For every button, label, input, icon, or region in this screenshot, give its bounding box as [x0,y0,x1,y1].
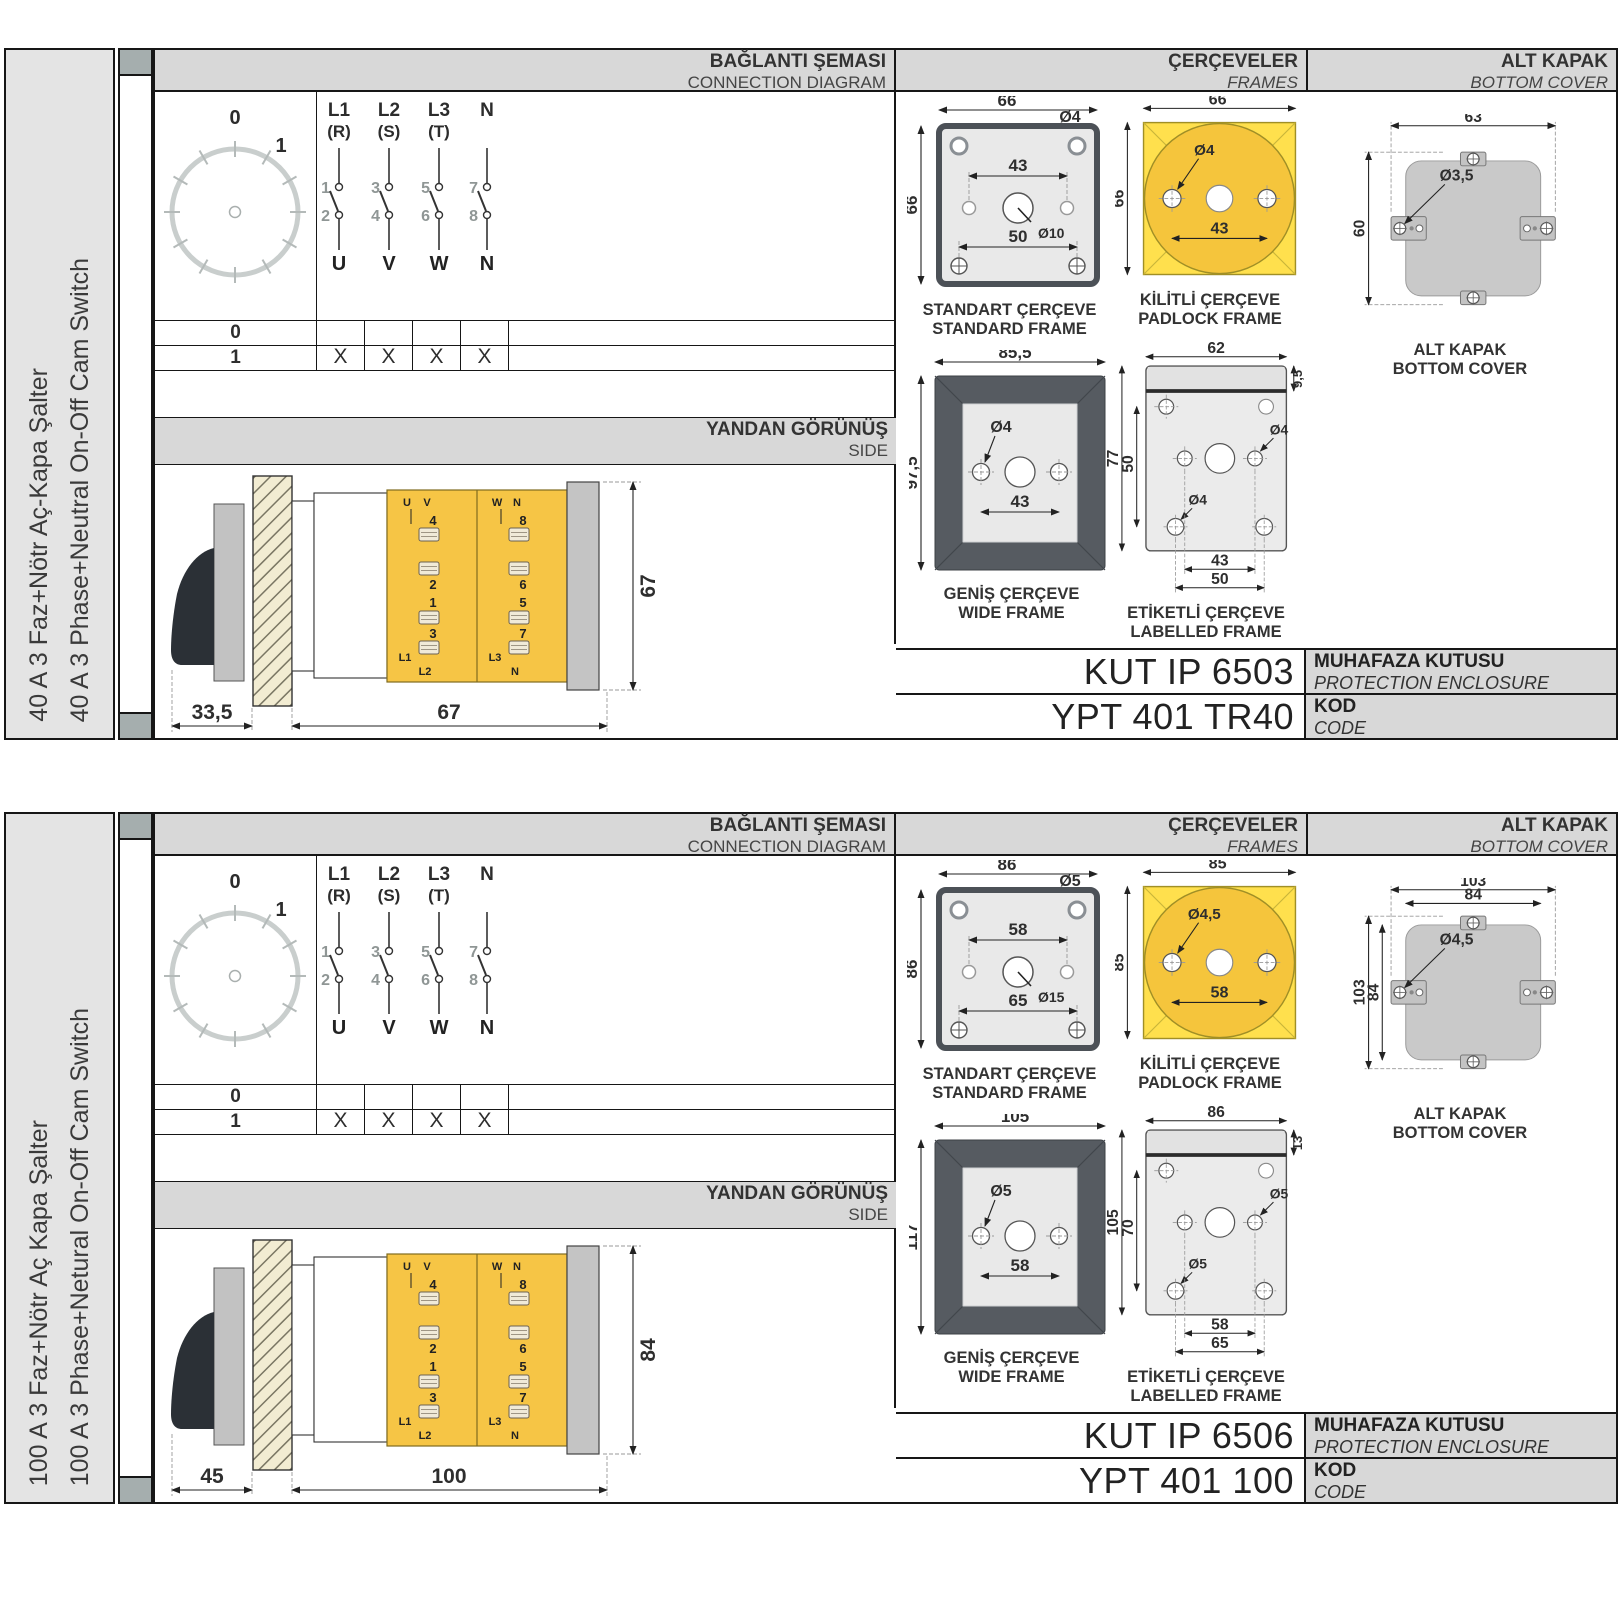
dim-hole-a: Ø5 [1270,1185,1289,1201]
side-header-tr: YANDAN GÖRÜNÜŞ [155,1183,888,1205]
dim-frame-width: 66 [1209,96,1227,109]
dim-hole-span: 58 [1011,1256,1030,1275]
dim-inner-height: 50 [1120,455,1137,473]
dim-hole-span: 43 [1009,156,1028,175]
end-plate [567,1246,599,1454]
dim-frame-height: 97,5 [909,456,921,489]
dim-frame-width: 85,5 [998,350,1031,362]
dim-hole-span: 58 [1211,984,1229,1002]
end-plate [567,482,599,690]
dim-frame-height: 85 [1115,954,1128,972]
caption-padlock-tr: KİLİTLİ ÇERÇEVE [1115,1055,1305,1074]
dim-frame-width: 85 [1209,860,1227,873]
contact-state-cell [317,1085,365,1109]
dim-frame-height: 66 [1115,190,1128,208]
side-view-drawing: U V 4 2 1 3 L1 L2 W N [163,474,683,738]
dim-label-strip: 13 [1290,1136,1305,1150]
switching-table: 0 1 X X X X [155,320,896,371]
header-connection-en: CONNECTION DIAGRAM [155,837,886,857]
dim-hole-span: 43 [1211,220,1229,238]
terminal-number-in: 1 [321,180,330,197]
phase-sublabel: (R) [327,886,351,905]
dim-cover-top-inner: 84 [1465,887,1483,904]
side-view-header: YANDAN GÖRÜNÜŞ SIDE [155,417,896,465]
contact-state-cell [317,321,365,345]
contact-state-cell [413,321,461,345]
contact-state-cell: X [413,346,461,370]
header-cover-tr: ALT KAPAK [1308,51,1608,73]
caption-labelled-tr: ETİKETLİ ÇERÇEVE [1107,1368,1305,1387]
switch-handle [171,548,214,665]
wide-frame-drawing: 105 Ø5 58 117 [909,1114,1114,1342]
terminal-number-out: 4 [371,208,380,225]
terminal-label: L1 [399,652,412,664]
dim-hole-a: Ø4 [1270,421,1289,437]
dim-span-b: 50 [1211,571,1229,588]
terminal-label: U [403,497,411,509]
output-terminal-label: V [382,253,396,275]
terminal-label: N [513,497,521,509]
terminal-label: 1 [429,1359,436,1374]
standard-frame-figure: 66 Ø4 Ø10 43 50 66 [907,96,1112,339]
table-spacer [509,346,896,370]
dim-cover-left-outer: 60 [1352,219,1369,237]
terminal-label: L2 [419,1430,432,1442]
terminal-number-in: 7 [469,944,478,961]
dim-frame-height: 66 [907,196,921,215]
terminal-label: L3 [489,652,502,664]
output-terminal-label: V [382,1017,396,1039]
header-frames-en: FRAMES [896,73,1298,93]
standard-frame-drawing: 66 Ø4 Ø10 43 50 66 [907,96,1112,294]
caption-wide-tr: GENİŞ ÇERÇEVE [909,1349,1114,1368]
handle-boss [214,504,244,681]
output-terminal-label: W [430,253,449,275]
side-header-tr: YANDAN GÖRÜNÜŞ [155,419,888,441]
phase-label: N [480,864,494,885]
table-spacer [509,1085,896,1109]
labelled-frame-drawing: 62 Ø4 Ø4 9,5 77 50 [1107,342,1305,597]
bottom-cover-drawing: 63 60 [1345,114,1575,334]
code-label-cell: KOD CODE [1306,695,1616,738]
terminal-number-out: 2 [321,972,330,989]
header-cover-en: BOTTOM COVER [1308,73,1608,93]
dim-hole-b: Ø5 [1188,1256,1207,1272]
spacer-ring [292,1265,314,1435]
switching-table: 0 1 X X X X [155,1084,896,1135]
contacts-cell: L1 (R) 1 2 U L2 (S) 3 [317,856,892,1084]
product-row: 40 A 3 Faz+Nötr Aç-Kapa Şalter 40 A 3 Ph… [4,48,1618,740]
dim-span-b: 65 [1211,1335,1229,1352]
code-row: YPT 401 TR40 KOD CODE [896,693,1616,738]
contact-state-cell [413,1085,461,1109]
product-sidebar: 100 A 3 Faz+Nötr Aç Kapa Şalter 100 A 3 … [4,812,115,1504]
terminal-number-out: 2 [321,208,330,225]
code-label-en: CODE [1314,718,1608,739]
product-sidebar: 40 A 3 Faz+Nötr Aç-Kapa Şalter 40 A 3 Ph… [4,48,115,740]
dim-screw-span: 50 [1009,227,1028,246]
contact-state-cell [365,1085,413,1109]
dial-position-1: 1 [275,899,286,921]
dim-hole: Ø4,5 [1188,906,1221,923]
section-header-band: BAĞLANTI ŞEMASI CONNECTION DIAGRAM ÇERÇE… [155,50,1616,92]
caption-cover-tr: ALT KAPAK [1345,1105,1575,1124]
labelled-frame-figure: 86 Ø5 Ø5 13 105 70 [1107,1106,1305,1406]
spine-square-top [120,814,151,840]
phase-label: L1 [328,864,351,885]
output-terminal-label: W [430,1017,449,1039]
front-housing [314,493,387,678]
contact-state-cell [461,321,509,345]
side-view-header: YANDAN GÖRÜNÜŞ SIDE [155,1181,896,1229]
mounting-panel-hatched [253,1240,292,1470]
padlock-frame-drawing: 85 Ø4,5 58 85 [1115,860,1305,1048]
labelled-frame-figure: 62 Ø4 Ø4 9,5 77 50 [1107,342,1305,642]
terminal-label: L1 [399,1416,412,1428]
position-label: 1 [155,346,317,370]
wide-frame-figure: 85,5 Ø4 43 97,5 GENİŞ ÇERÇEV [909,350,1114,623]
terminal-number-in: 1 [321,944,330,961]
dim-frame-height: 86 [907,960,921,979]
dim-center-hole: Ø15 [1038,989,1065,1005]
caption-labelled-tr: ETİKETLİ ÇERÇEVE [1107,604,1305,623]
caption-cover-en: BOTTOM COVER [1345,360,1575,379]
product-name-tr: 40 A 3 Faz+Nötr Aç-Kapa Şalter [25,368,54,722]
dial-position-0: 0 [229,107,240,129]
datasheet-panel: BAĞLANTI ŞEMASI CONNECTION DIAGRAM ÇERÇE… [153,48,1618,740]
wide-frame-drawing: 85,5 Ø4 43 97,5 [909,350,1114,578]
enclosure-row: KUT IP 6506 MUHAFAZA KUTUSU PROTECTION E… [896,1412,1616,1457]
caption-labelled-en: LABELLED FRAME [1107,623,1305,642]
dim-frame-width: 66 [998,96,1017,110]
enclosure-label-en: PROTECTION ENCLOSURE [1314,673,1608,694]
header-bottom-cover: ALT KAPAK BOTTOM COVER [1308,814,1616,854]
table-row-position-1: 1 X X X X [155,345,896,370]
caption-wide-tr: GENİŞ ÇERÇEVE [909,585,1114,604]
spine-square-bottom [120,712,151,738]
dial-position-1: 1 [275,135,286,157]
output-terminal-label: U [332,253,346,275]
side-header-en: SIDE [155,1205,888,1225]
dim-frame-height: 117 [909,1223,921,1250]
dim-handle-depth: 45 [200,1465,224,1488]
contact-state-cell: X [413,1110,461,1134]
caption-standard-en: STANDARD FRAME [907,1084,1112,1103]
terminal-number-out: 8 [469,972,478,989]
dim-handle-depth: 33,5 [192,701,233,724]
terminal-label: 2 [429,1341,436,1356]
caption-padlock-tr: KİLİTLİ ÇERÇEVE [1115,291,1305,310]
section-header-band: BAĞLANTI ŞEMASI CONNECTION DIAGRAM ÇERÇE… [155,814,1616,856]
dial-cell: 0 1 [155,856,317,1084]
contact-column: L2 (S) 3 4 V [371,864,400,1039]
terminal-label: L3 [489,1416,502,1428]
dim-frame-width: 105 [1001,1114,1029,1126]
code-label-en: CODE [1314,1482,1608,1503]
contact-state-cell: X [317,346,365,370]
dim-inner-height: 70 [1120,1219,1137,1237]
terminal-label: 8 [519,513,526,528]
caption-standard-en: STANDARD FRAME [907,320,1112,339]
phase-sublabel: (S) [378,886,401,905]
contact-state-cell [461,1085,509,1109]
enclosure-row: KUT IP 6503 MUHAFAZA KUTUSU PROTECTION E… [896,648,1616,693]
enclosure-label-tr: MUHAFAZA KUTUSU [1314,1415,1608,1437]
table-row-position-1: 1 X X X X [155,1109,896,1134]
caption-padlock-en: PADLOCK FRAME [1115,1074,1305,1093]
rotary-dial-diagram: 0 1 [155,856,317,1084]
contact-diagram: L1 (R) 1 2 U L2 (S) 3 [317,856,892,1084]
front-housing [314,1257,387,1442]
enclosure-label-cell: MUHAFAZA KUTUSU PROTECTION ENCLOSURE [1306,1414,1616,1457]
terminal-label: 7 [519,626,526,641]
terminal-label: N [513,1261,521,1273]
phase-label: L2 [378,100,400,121]
binding-spine [118,48,153,740]
cover-left-inner-dim: 84 [1365,925,1382,1060]
contact-column: N 7 8 N [469,100,494,275]
spine-square-bottom [120,1476,151,1502]
terminal-label: U [403,1261,411,1273]
terminal-number-out: 8 [469,208,478,225]
phase-sublabel: (R) [327,122,351,141]
table-row-position-0: 0 [155,320,896,345]
phase-label: L3 [428,100,450,121]
table-spacer [509,321,896,345]
dim-label-strip: 9,5 [1290,370,1305,388]
padlock-frame-figure: 85 Ø4,5 58 85 KİLİTLİ ÇERÇEV [1115,860,1305,1093]
dim-span-a: 58 [1211,1317,1229,1334]
header-frames-tr: ÇERÇEVELER [896,815,1298,837]
contact-state-cell: X [317,1110,365,1134]
output-terminal-label: N [480,253,494,275]
terminal-label: N [511,666,519,678]
side-view-figure: U V 4 2 1 3 L1 L2 W N [163,1238,683,1507]
table-row-position-0: 0 [155,1084,896,1109]
header-connection-diagram: BAĞLANTI ŞEMASI CONNECTION DIAGRAM [155,814,896,854]
contact-column: L1 (R) 1 2 U [321,100,351,275]
side-header-en: SIDE [155,441,888,461]
phase-sublabel: (S) [378,122,401,141]
terminal-label: 4 [429,1277,437,1292]
datasheet-panel: BAĞLANTI ŞEMASI CONNECTION DIAGRAM ÇERÇE… [153,812,1618,1504]
terminal-label: 5 [519,1359,526,1374]
dim-hole-b: Ø4 [1188,492,1207,508]
bottom-cover-figure: 63 60 [1345,114,1575,379]
terminal-number-out: 6 [421,972,430,989]
terminal-label: 2 [429,577,436,592]
terminal-label: 4 [429,513,437,528]
padlock-frame-drawing: 66 Ø4 43 66 [1115,96,1305,284]
dim-frame-width: 86 [1207,1106,1225,1121]
terminal-label: 5 [519,595,526,610]
enclosure-code-value: KUT IP 6503 [896,650,1306,693]
dim-hole: Ø4 [990,419,1011,436]
terminal-label: W [492,1261,503,1273]
phase-label: L3 [428,864,450,885]
caption-cover-tr: ALT KAPAK [1345,341,1575,360]
terminal-label: N [511,1430,519,1442]
caption-wide-en: WIDE FRAME [909,1368,1114,1387]
side-view-drawing: U V 4 2 1 3 L1 L2 W N [163,1238,683,1502]
terminal-number-in: 7 [469,180,478,197]
contact-column: L3 (T) 5 6 W [421,864,450,1039]
caption-standard-tr: STANDART ÇERÇEVE [907,1065,1112,1084]
dim-hole-span: 58 [1009,920,1028,939]
output-terminal-label: U [332,1017,346,1039]
dim-cover-top-outer: 63 [1465,114,1483,126]
caption-standard-tr: STANDART ÇERÇEVE [907,301,1112,320]
product-name-tr: 100 A 3 Faz+Nötr Aç Kapa Şalter [25,1120,54,1486]
dim-cover-hole: Ø4,5 [1440,931,1474,948]
product-code-value: YPT 401 100 [896,1459,1306,1502]
contact-column: L1 (R) 1 2 U [321,864,351,1039]
terminal-number-in: 5 [421,180,430,197]
header-connection-tr: BAĞLANTI ŞEMASI [155,51,886,73]
bottom-cover-drawing: 103 84 103 84 [1345,878,1575,1098]
terminal-label: V [423,1261,431,1273]
terminal-number-out: 6 [421,208,430,225]
output-terminal-label: N [480,1017,494,1039]
header-connection-en: CONNECTION DIAGRAM [155,73,886,93]
dim-hole: Ø5 [990,1183,1011,1200]
terminal-label: 3 [429,626,436,641]
caption-padlock-en: PADLOCK FRAME [1115,310,1305,329]
caption-cover-en: BOTTOM COVER [1345,1124,1575,1143]
header-frames-en: FRAMES [896,837,1298,857]
terminal-label: 3 [429,1390,436,1405]
product-name-en: 40 A 3 Phase+Neutral On-Off Cam Switch [66,258,95,722]
wide-frame-figure: 105 Ø5 58 117 GENİŞ ÇERÇEVE [909,1114,1114,1387]
contact-column: L2 (S) 3 4 V [371,100,400,275]
contact-state-cell: X [461,1110,509,1134]
side-view-figure: U V 4 2 1 3 L1 L2 W N [163,474,683,743]
terminal-label: 6 [519,1341,526,1356]
position-label: 1 [155,1110,317,1134]
dim-hole: Ø4 [1194,142,1215,159]
terminal-label: 6 [519,577,526,592]
rotary-dial-diagram: 0 1 [155,92,317,320]
contact-diagram: L1 (R) 1 2 U L2 (S) 3 [317,92,892,320]
header-cover-tr: ALT KAPAK [1308,815,1608,837]
header-frames-tr: ÇERÇEVELER [896,51,1298,73]
table-spacer [509,1110,896,1134]
padlock-frame-figure: 66 Ø4 43 66 KİLİTLİ ÇERÇEVE [1115,96,1305,329]
mounting-panel-hatched [253,476,292,706]
terminal-label: V [423,497,431,509]
standard-frame-drawing: 86 Ø5 Ø15 58 65 86 [907,860,1112,1058]
enclosure-label-cell: MUHAFAZA KUTUSU PROTECTION ENCLOSURE [1306,650,1616,693]
contacts-cell: L1 (R) 1 2 U L2 (S) 3 [317,92,892,320]
position-label: 0 [155,321,317,345]
dim-frame-width: 86 [998,860,1017,874]
code-label-cell: KOD CODE [1306,1459,1616,1502]
dim-center-hole: Ø10 [1038,225,1065,241]
header-frames: ÇERÇEVELER FRAMES [896,50,1308,90]
terminal-number-in: 5 [421,944,430,961]
header-bottom-cover: ALT KAPAK BOTTOM COVER [1308,50,1616,90]
contact-state-cell: X [365,1110,413,1134]
caption-wide-en: WIDE FRAME [909,604,1114,623]
contact-column: L3 (T) 5 6 W [421,100,450,275]
header-cover-en: BOTTOM COVER [1308,837,1608,857]
terminal-label: W [492,497,503,509]
code-label-tr: KOD [1314,1460,1608,1482]
code-row: YPT 401 100 KOD CODE [896,1457,1616,1502]
terminal-label: 1 [429,595,436,610]
cover-top-inner-dim: 84 [1406,887,1541,904]
dim-screw-span: 65 [1009,991,1028,1010]
terminal-label: 8 [519,1277,526,1292]
phase-label: L2 [378,864,400,885]
phase-sublabel: (T) [428,122,450,141]
enclosure-code-value: KUT IP 6506 [896,1414,1306,1457]
dim-body-width: 100 [431,1465,466,1488]
dim-hole-span: 43 [1011,492,1030,511]
terminal-number-in: 3 [371,944,380,961]
code-label-tr: KOD [1314,696,1608,718]
standard-frame-figure: 86 Ø5 Ø15 58 65 86 [907,860,1112,1103]
terminal-label: L2 [419,666,432,678]
spacer-ring [292,501,314,671]
handle-boss [214,1268,244,1445]
dim-cover-hole: Ø3,5 [1440,167,1474,184]
contact-state-cell [365,321,413,345]
dim-span-a: 43 [1211,553,1229,570]
header-frames: ÇERÇEVELER FRAMES [896,814,1308,854]
dim-cover-left-inner: 84 [1365,983,1382,1001]
phase-label: L1 [328,100,351,121]
enclosure-label-tr: MUHAFAZA KUTUSU [1314,651,1608,673]
position-label: 0 [155,1085,317,1109]
dial-cell: 0 1 [155,92,317,320]
dim-body-height: 67 [637,574,660,597]
dim-body-height: 84 [637,1338,660,1362]
terminal-label: 7 [519,1390,526,1405]
terminal-number-in: 3 [371,180,380,197]
header-connection-diagram: BAĞLANTI ŞEMASI CONNECTION DIAGRAM [155,50,896,90]
dial-position-0: 0 [229,871,240,893]
product-row: 100 A 3 Faz+Nötr Aç Kapa Şalter 100 A 3 … [4,812,1618,1504]
dim-frame-width: 62 [1207,342,1225,357]
dim-body-width: 67 [437,701,460,724]
product-name-en: 100 A 3 Phase+Netural On-Off Cam Switch [66,1008,95,1486]
contact-state-cell: X [365,346,413,370]
labelled-frame-drawing: 86 Ø5 Ø5 13 105 70 [1107,1106,1305,1361]
caption-labelled-en: LABELLED FRAME [1107,1387,1305,1406]
product-code-value: YPT 401 TR40 [896,695,1306,738]
contact-column: N 7 8 N [469,864,494,1039]
phase-sublabel: (T) [428,886,450,905]
switch-handle [171,1312,214,1429]
terminal-number-out: 4 [371,972,380,989]
binding-spine [118,812,153,1504]
spine-square-top [120,50,151,76]
bottom-cover-figure: 103 84 103 84 [1345,878,1575,1143]
contact-state-cell: X [461,346,509,370]
phase-label: N [480,100,494,121]
header-connection-tr: BAĞLANTI ŞEMASI [155,815,886,837]
enclosure-label-en: PROTECTION ENCLOSURE [1314,1437,1608,1458]
